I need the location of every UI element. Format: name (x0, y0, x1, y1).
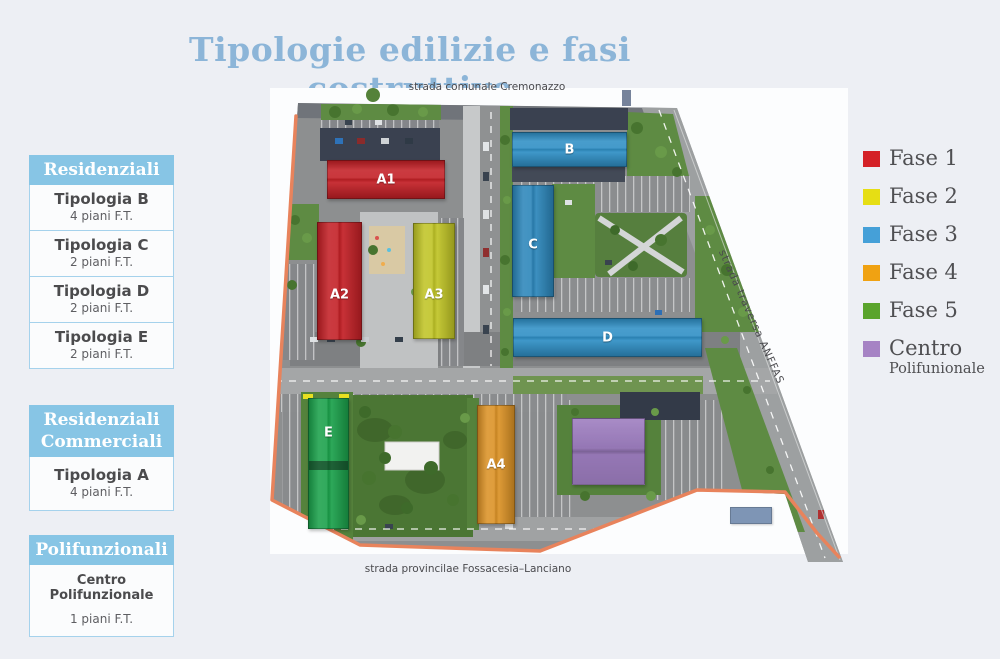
fase-5-swatch (863, 303, 880, 319)
building-a3: A3 (413, 223, 455, 339)
building-a4: A4 (477, 405, 515, 524)
item-name: Tipologia C (30, 236, 173, 254)
item-name: Centro Polifunzionale (30, 573, 173, 603)
fase-3-swatch (863, 227, 880, 243)
item-floors: 1 piani F.T. (30, 612, 173, 626)
building-label: A2 (318, 287, 361, 302)
building-label: A4 (478, 457, 514, 472)
item-name: Tipologia B (30, 190, 173, 208)
item-floors: 2 piani F.T. (30, 255, 173, 269)
legend-label: Fase 5 (889, 300, 958, 321)
page: Tipologie edilizie e fasi costruttive Re… (0, 0, 1000, 659)
item-name: Tipologia D (30, 282, 173, 300)
sidebar-header: Residenziali Commerciali (29, 405, 174, 457)
site-plan-map: A1 A2 A3 B C D E A4 strada comunale Crem… (265, 80, 850, 585)
sidebar-item-tipologia-e: Tipologia E 2 piani F.T. (29, 323, 174, 369)
legend-row-fase-1: Fase 1 (863, 148, 985, 170)
building-c: C (512, 185, 554, 297)
legend-row-fase-4: Fase 4 (863, 262, 985, 284)
item-floors: 4 piani F.T. (30, 209, 173, 223)
legend-sublabel: Polifunionale (889, 361, 985, 377)
sidebar-group-polifunzionali: Polifunzionali Centro Polifunzionale 1 p… (29, 535, 174, 637)
sidebar-group-residenziali: Residenziali Tipologia B 4 piani F.T. Ti… (29, 155, 174, 369)
item-floors: 2 piani F.T. (30, 347, 173, 361)
legend-row-fase-3: Fase 3 (863, 224, 985, 246)
fase-1-swatch (863, 151, 880, 167)
building-centro-polifunzionale (572, 418, 645, 485)
item-name: Tipologia A (30, 466, 173, 484)
street-label-fossacesia-lanciano: strada provincilae Fossacesia–Lanciano (338, 563, 598, 575)
item-floors: 2 piani F.T. (30, 301, 173, 315)
sidebar-group-residenziali-commerciali: Residenziali Commerciali Tipologia A 4 p… (29, 405, 174, 511)
building-label: A1 (328, 172, 444, 187)
sidebar-item-tipologia-c: Tipologia C 2 piani F.T. (29, 231, 174, 277)
legend-label: Fase 4 (889, 262, 958, 283)
fase-4-swatch (863, 265, 880, 281)
building-d: D (513, 318, 702, 357)
phase-legend: Fase 1 Fase 2 Fase 3 Fase 4 Fase 5 Centr… (863, 148, 985, 393)
sidebar-header: Residenziali (29, 155, 174, 185)
fase-2-swatch (863, 189, 880, 205)
building-label: C (513, 238, 553, 253)
building-b: B (512, 132, 627, 167)
street-label-cremonazzo: strada comunale Cremonazzo (377, 81, 597, 93)
building-a1: A1 (327, 160, 445, 199)
building-label: B (513, 142, 626, 157)
building-label: D (514, 330, 701, 345)
centro-swatch (863, 341, 880, 357)
item-name: Tipologia E (30, 328, 173, 346)
legend-row-fase-5: Fase 5 (863, 300, 985, 322)
legend-row-fase-2: Fase 2 (863, 186, 985, 208)
legend-label: Fase 3 (889, 224, 958, 245)
building-label: A3 (414, 287, 454, 302)
sidebar-item-tipologia-a: Tipologia A 4 piani F.T. (29, 457, 174, 511)
building-label: E (309, 425, 348, 440)
legend-label: Fase 1 (889, 148, 958, 169)
legend-label: Fase 2 (889, 186, 958, 207)
sidebar-item-centro-polifunzionale: Centro Polifunzionale 1 piani F.T. (29, 565, 174, 637)
building-e: E (308, 398, 349, 529)
building-annex (730, 507, 772, 524)
sidebar-header: Polifunzionali (29, 535, 174, 565)
item-floors: 4 piani F.T. (30, 485, 173, 499)
sidebar-item-tipologia-d: Tipologia D 2 piani F.T. (29, 277, 174, 323)
sidebar-item-tipologia-b: Tipologia B 4 piani F.T. (29, 185, 174, 231)
building-a2: A2 (317, 222, 362, 340)
legend-row-centro: Centro Polifunionale (863, 338, 985, 377)
legend-label: Centro (889, 338, 985, 359)
